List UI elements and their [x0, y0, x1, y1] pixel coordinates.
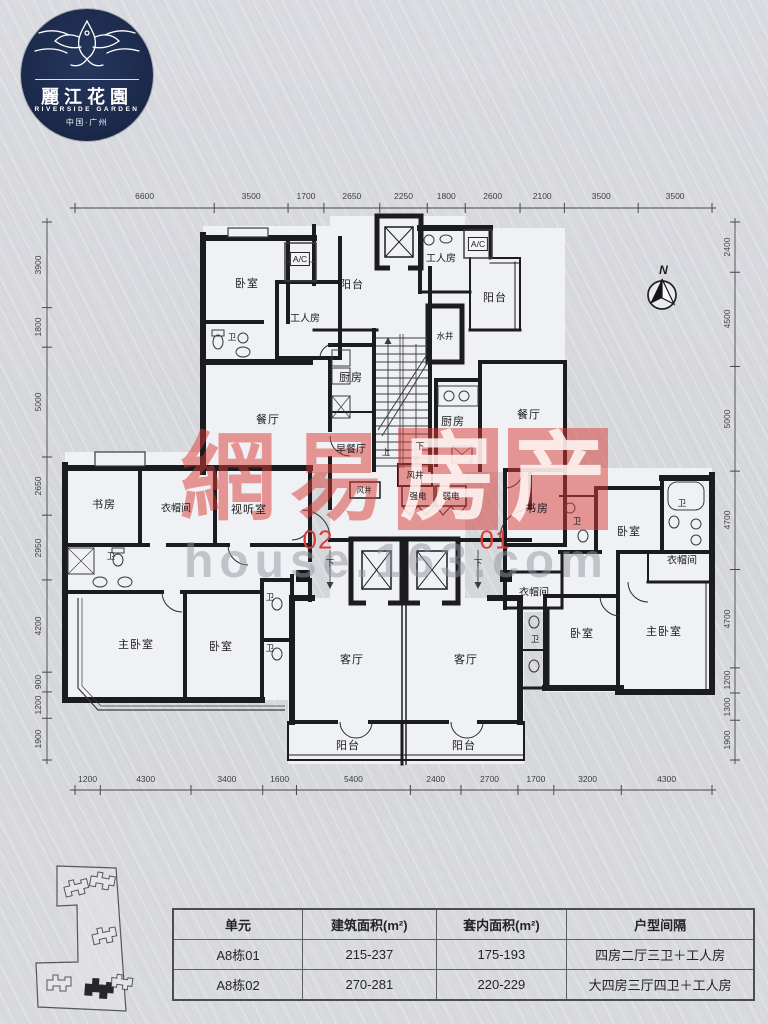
logo-flower-icon — [21, 13, 153, 79]
logo: 麗江花園 RIVERSIDE GARDEN 中国·广州 — [21, 9, 153, 141]
logo-subtitle: 中国·广州 — [21, 117, 153, 128]
col-header-unit: 单元 — [173, 909, 303, 940]
col-header-net-area: 套内面积(m²) — [436, 909, 567, 940]
floorplan-page: 網 易 房 产 house.163.com 卧室A/C工人房阳台工人房A/C阳台… — [0, 0, 768, 1024]
cell-unit: A8栋02 — [173, 970, 303, 1001]
cell-gross-area: 215-237 — [303, 940, 437, 970]
cell-layout: 四房二厅三卫＋工人房 — [567, 940, 754, 970]
table-row: A8栋01 215-237 175-193 四房二厅三卫＋工人房 — [173, 940, 754, 970]
site-map — [36, 866, 133, 1011]
col-header-layout: 户型间隔 — [567, 909, 754, 940]
table-header-row: 单元 建筑面积(m²) 套内面积(m²) 户型间隔 — [173, 909, 754, 940]
floorplan-drawing — [0, 0, 768, 1024]
cell-net-area: 220-229 — [436, 970, 567, 1001]
col-header-gross-area: 建筑面积(m²) — [303, 909, 437, 940]
cell-layout: 大四房三厅四卫＋工人房 — [567, 970, 754, 1001]
cell-gross-area: 270-281 — [303, 970, 437, 1001]
logo-divider — [35, 79, 139, 80]
cell-unit: A8栋01 — [173, 940, 303, 970]
compass-icon — [648, 279, 676, 309]
table-row: A8栋02 270-281 220-229 大四房三厅四卫＋工人房 — [173, 970, 754, 1001]
logo-title-en: RIVERSIDE GARDEN — [21, 106, 153, 113]
cell-net-area: 175-193 — [436, 940, 567, 970]
unit-spec-table: 单元 建筑面积(m²) 套内面积(m²) 户型间隔 A8栋01 215-237 … — [172, 908, 755, 1001]
